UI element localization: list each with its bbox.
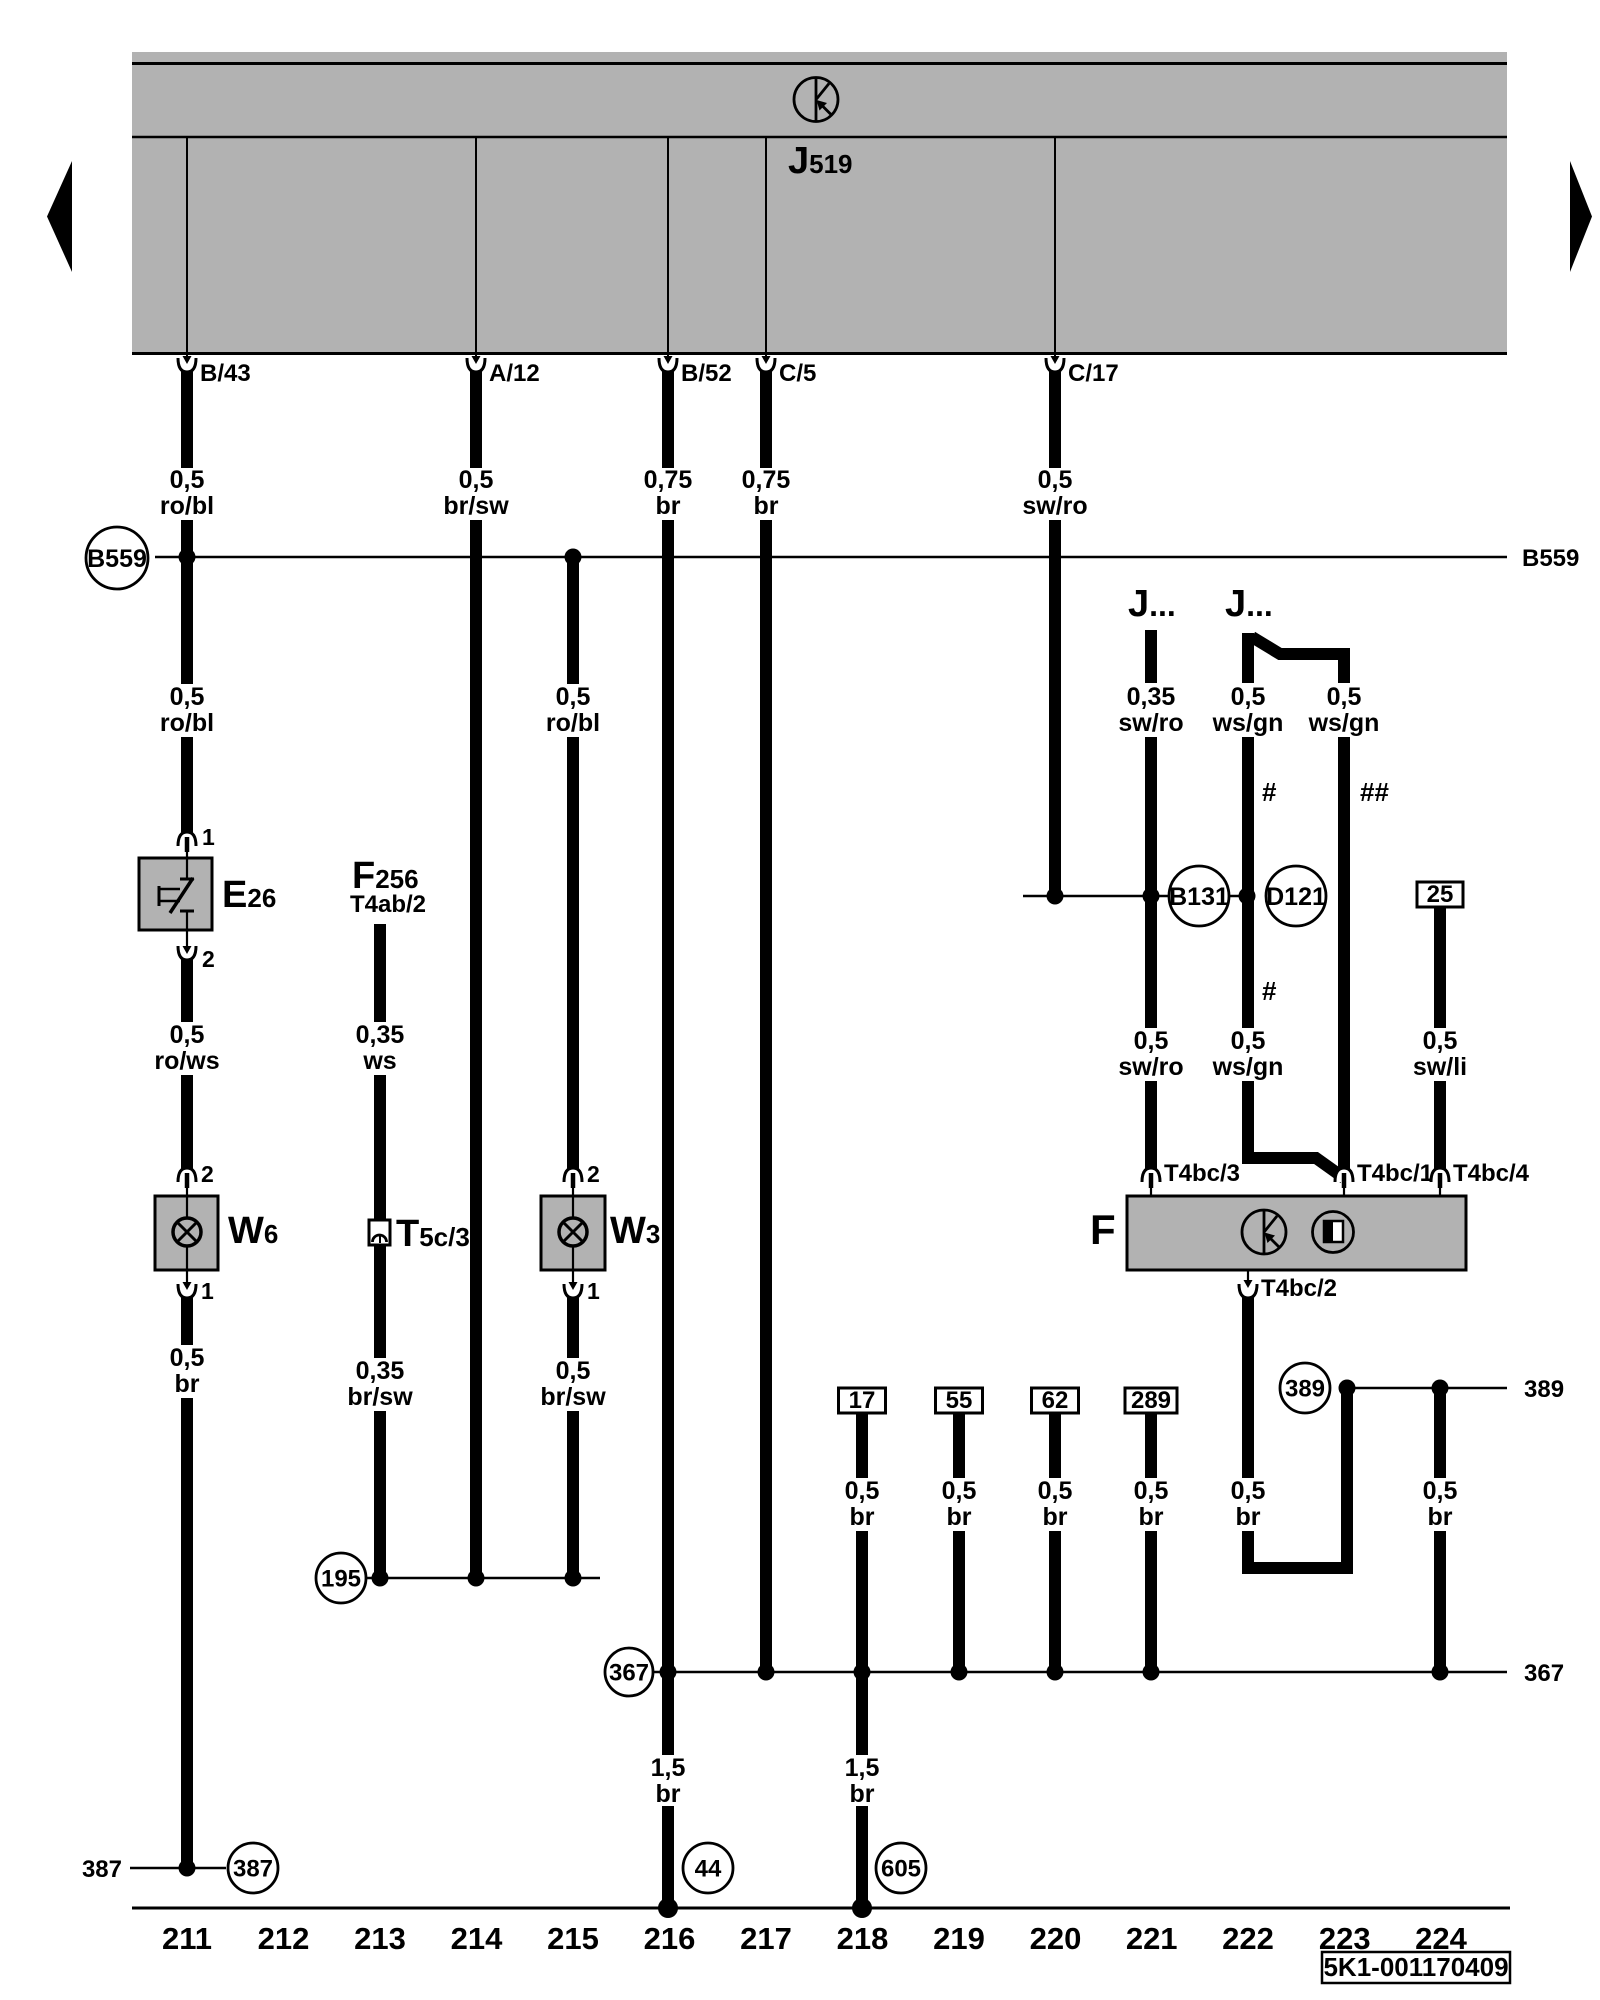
svg-text:br: br: [947, 1503, 972, 1531]
svg-text:T4bc/4: T4bc/4: [1453, 1160, 1530, 1187]
svg-text:215: 215: [547, 1921, 599, 1956]
svg-text:C/17: C/17: [1068, 360, 1119, 387]
svg-text:2: 2: [202, 946, 215, 972]
svg-text:ro/bl: ro/bl: [160, 709, 214, 737]
svg-text:T4bc/3: T4bc/3: [1164, 1160, 1240, 1187]
svg-text:B/52: B/52: [681, 360, 732, 387]
svg-text:213: 213: [354, 1921, 406, 1956]
svg-text:1,5: 1,5: [651, 1754, 686, 1782]
svg-text:C/5: C/5: [779, 360, 816, 387]
svg-text:219: 219: [933, 1921, 985, 1956]
svg-text:br/sw: br/sw: [540, 1383, 606, 1411]
svg-text:#: #: [1262, 976, 1277, 1006]
svg-text:0,75: 0,75: [742, 466, 791, 494]
svg-text:0,75: 0,75: [644, 466, 693, 494]
svg-text:sw/ro: sw/ro: [1022, 492, 1087, 520]
svg-text:br: br: [1139, 1503, 1164, 1531]
svg-text:0,5: 0,5: [170, 1344, 205, 1372]
svg-text:ro/ws: ro/ws: [154, 1047, 219, 1075]
svg-text:216: 216: [644, 1921, 696, 1956]
svg-text:br: br: [1428, 1503, 1453, 1531]
svg-text:44: 44: [695, 1856, 722, 1883]
svg-text:br/sw: br/sw: [347, 1383, 413, 1411]
svg-text:0,5: 0,5: [170, 1021, 205, 1049]
svg-text:218: 218: [837, 1921, 889, 1956]
svg-text:br: br: [175, 1370, 200, 1398]
svg-text:T4bc/2: T4bc/2: [1261, 1275, 1337, 1302]
svg-text:1: 1: [201, 1278, 214, 1304]
svg-text:387: 387: [82, 1856, 122, 1883]
svg-text:217: 217: [740, 1921, 792, 1956]
svg-text:387: 387: [233, 1856, 273, 1883]
svg-text:389: 389: [1524, 1376, 1564, 1403]
svg-text:D121: D121: [1266, 883, 1326, 911]
svg-text:sw/ro: sw/ro: [1118, 1053, 1183, 1081]
svg-text:1,5: 1,5: [845, 1754, 880, 1782]
svg-text:0,5: 0,5: [556, 683, 591, 711]
svg-text:T4bc/1: T4bc/1: [1357, 1160, 1433, 1187]
svg-text:0,5: 0,5: [1423, 1027, 1458, 1055]
svg-text:##: ##: [1360, 777, 1389, 807]
svg-text:ws/gn: ws/gn: [1212, 709, 1284, 737]
svg-text:0,5: 0,5: [845, 1477, 880, 1505]
svg-text:0,5: 0,5: [942, 1477, 977, 1505]
svg-text:0,35: 0,35: [356, 1021, 405, 1049]
svg-text:5K1-001170409: 5K1-001170409: [1323, 1952, 1508, 1982]
svg-text:T4ab/2: T4ab/2: [350, 891, 426, 918]
svg-text:br: br: [754, 492, 779, 520]
svg-text:br/sw: br/sw: [443, 492, 509, 520]
svg-text:0,5: 0,5: [1231, 1477, 1266, 1505]
svg-text:0,5: 0,5: [1231, 1027, 1266, 1055]
svg-text:br: br: [656, 1780, 681, 1808]
svg-text:0,5: 0,5: [170, 683, 205, 711]
svg-text:220: 220: [1030, 1921, 1082, 1956]
svg-text:55: 55: [946, 1387, 973, 1414]
svg-text:1: 1: [587, 1278, 600, 1304]
svg-text:B559: B559: [87, 545, 147, 573]
svg-text:367: 367: [609, 1660, 649, 1687]
svg-text:B/43: B/43: [200, 360, 251, 387]
svg-text:214: 214: [451, 1921, 503, 1956]
svg-text:211: 211: [162, 1921, 212, 1956]
svg-text:0,5: 0,5: [1327, 683, 1362, 711]
svg-text:br: br: [656, 492, 681, 520]
svg-text:289: 289: [1131, 1387, 1171, 1414]
svg-text:0,5: 0,5: [170, 466, 205, 494]
svg-text:B131: B131: [1169, 883, 1229, 911]
svg-text:0,5: 0,5: [1423, 1477, 1458, 1505]
svg-text:0,5: 0,5: [459, 466, 494, 494]
svg-text:1: 1: [202, 824, 215, 850]
svg-text:222: 222: [1222, 1921, 1274, 1956]
svg-text:br: br: [850, 1503, 875, 1531]
svg-text:0,5: 0,5: [1038, 466, 1073, 494]
svg-text:62: 62: [1042, 1387, 1069, 1414]
svg-text:br: br: [850, 1780, 875, 1808]
svg-text:0,35: 0,35: [1127, 683, 1176, 711]
svg-text:ws/gn: ws/gn: [1308, 709, 1380, 737]
svg-text:J...: J...: [1225, 583, 1273, 625]
svg-text:17: 17: [849, 1387, 876, 1414]
svg-text:367: 367: [1524, 1660, 1564, 1687]
svg-text:J...: J...: [1128, 583, 1176, 625]
svg-text:#: #: [1262, 777, 1277, 807]
svg-text:F: F: [1090, 1206, 1116, 1253]
svg-text:ro/bl: ro/bl: [160, 492, 214, 520]
svg-text:605: 605: [881, 1856, 921, 1883]
svg-text:A/12: A/12: [489, 360, 540, 387]
svg-text:sw/li: sw/li: [1413, 1053, 1467, 1081]
svg-text:ws/gn: ws/gn: [1212, 1053, 1284, 1081]
svg-text:0,5: 0,5: [1134, 1027, 1169, 1055]
svg-text:221: 221: [1126, 1921, 1178, 1956]
svg-text:195: 195: [321, 1566, 361, 1593]
svg-text:0,35: 0,35: [356, 1357, 405, 1385]
svg-text:0,5: 0,5: [1134, 1477, 1169, 1505]
svg-text:25: 25: [1427, 881, 1454, 908]
svg-text:0,5: 0,5: [1231, 683, 1266, 711]
svg-text:ws: ws: [362, 1047, 396, 1075]
svg-text:0,5: 0,5: [1038, 1477, 1073, 1505]
svg-text:2: 2: [201, 1161, 214, 1187]
svg-text:br: br: [1043, 1503, 1068, 1531]
svg-text:0,5: 0,5: [556, 1357, 591, 1385]
svg-text:B559: B559: [1522, 545, 1579, 572]
svg-text:br: br: [1236, 1503, 1261, 1531]
svg-text:sw/ro: sw/ro: [1118, 709, 1183, 737]
svg-text:212: 212: [258, 1921, 310, 1956]
svg-text:389: 389: [1285, 1376, 1325, 1403]
svg-text:2: 2: [587, 1161, 600, 1187]
svg-text:ro/bl: ro/bl: [546, 709, 600, 737]
